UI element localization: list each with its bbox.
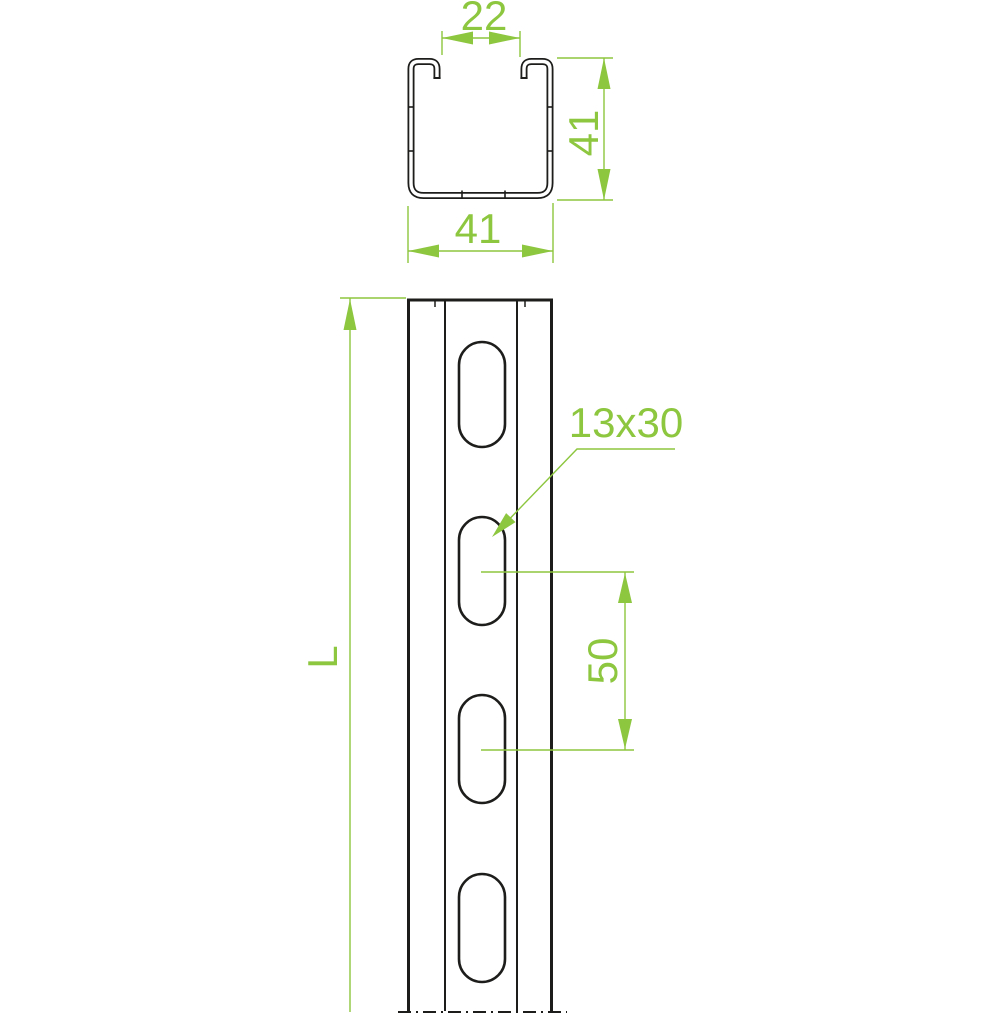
- dim-L-label: L: [299, 645, 346, 668]
- slot-hole-1: [459, 342, 505, 447]
- dimension-height-41: 41: [557, 58, 613, 200]
- elevation-view: [398, 299, 567, 1013]
- arrowhead-up: [344, 299, 357, 330]
- dimension-width-41: 41: [408, 203, 553, 263]
- arrowhead-up: [618, 573, 632, 603]
- dim-41h-label: 41: [455, 205, 502, 252]
- slot-hole-2: [459, 517, 505, 625]
- dim-41v-label: 41: [560, 110, 607, 157]
- slot-size-callout: 13x30: [492, 399, 683, 537]
- cross-section-view: [408, 62, 554, 199]
- dim-22-label: 22: [461, 0, 508, 39]
- dimension-length-L: L: [299, 298, 406, 1012]
- arrowhead-left: [408, 245, 439, 258]
- dimension-opening-22: 22: [442, 0, 520, 57]
- channel-profile-inner: [411, 62, 550, 196]
- technical-drawing: 22 41 41: [0, 0, 986, 1015]
- dim-50-label: 50: [579, 638, 626, 685]
- arrowhead-down: [598, 169, 611, 200]
- drawing-canvas: 22 41 41: [0, 0, 986, 1015]
- arrowhead-right: [522, 245, 553, 258]
- slot-size-label: 13x30: [569, 399, 683, 446]
- slot-hole-3: [459, 695, 505, 803]
- arrowhead-down: [618, 719, 632, 749]
- leader-line: [496, 449, 675, 533]
- arrowhead-up: [598, 58, 611, 89]
- slot-hole-4: [459, 874, 505, 982]
- channel-profile-outer: [411, 62, 550, 196]
